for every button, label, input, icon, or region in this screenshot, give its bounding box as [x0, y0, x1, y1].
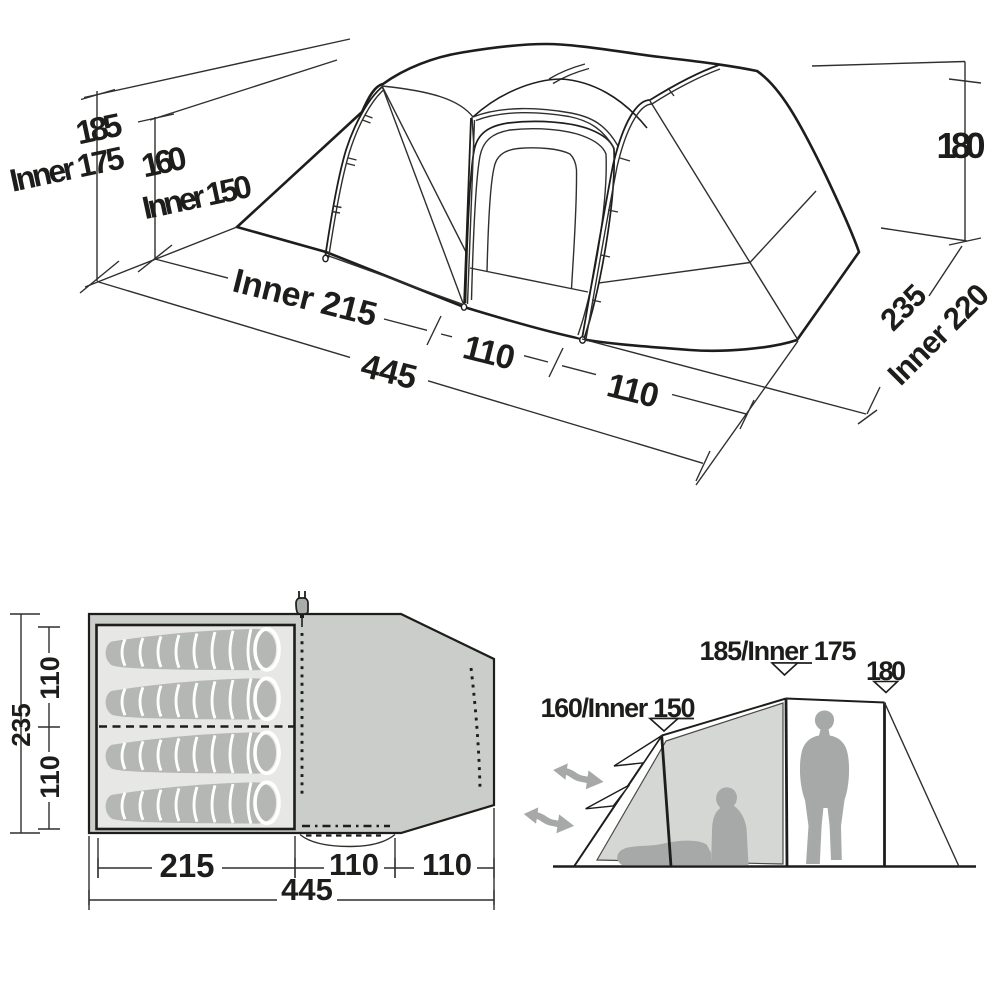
svg-text:235: 235 — [6, 703, 36, 746]
svg-text:215: 215 — [159, 847, 214, 884]
svg-text:110: 110 — [35, 755, 65, 799]
svg-text:185/Inner 175: 185/Inner 175 — [700, 636, 857, 666]
svg-text:445: 445 — [281, 872, 333, 907]
svg-text:110: 110 — [422, 847, 472, 882]
svg-text:110: 110 — [35, 656, 65, 700]
svg-text:110: 110 — [329, 847, 379, 882]
svg-text:180: 180 — [937, 125, 986, 166]
